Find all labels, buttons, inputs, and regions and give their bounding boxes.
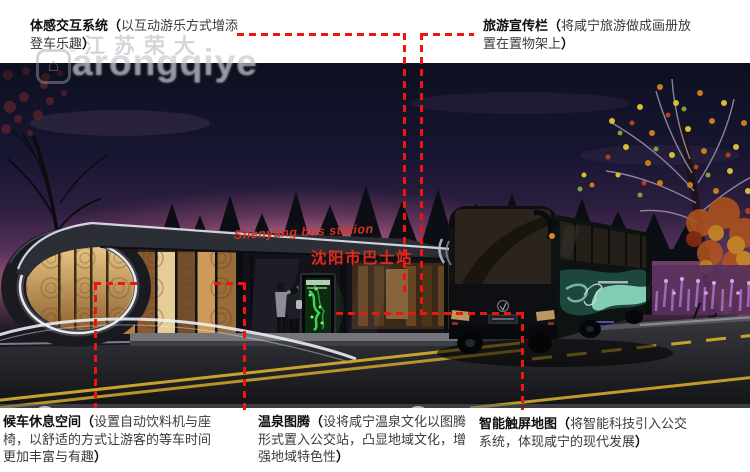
leader-line-lounge-v <box>94 283 97 408</box>
leader-line-sensory-v <box>403 33 406 292</box>
leader-line-totem-h <box>214 282 246 285</box>
presentation-board: 江苏荣大 ⌂ ® arongqiye 体感交互系统（以互动游乐方式增添登车乐趣）… <box>0 0 750 472</box>
leader-line-map-v <box>521 312 524 410</box>
banner-slogan: 江苏荣大 · 以品质成就价值 <box>446 406 706 409</box>
leader-line-tourism-v <box>420 33 423 313</box>
house-logo-icon: ⌂ <box>33 406 57 409</box>
callout-sensory-interaction: 体感交互系统（以互动游乐方式增添登车乐趣） <box>30 17 248 52</box>
callout-waiting-lounge: 候车休息空间（设置自动饮料机与座椅，以舒适的方式让游客的等车时间更加丰富与有趣） <box>3 413 221 466</box>
leader-line-totem-v <box>243 283 246 412</box>
banner-brand-right: ⌂® 江苏荣大 · 以品质成就价值 <box>406 404 706 408</box>
callout-title: 候车休息空间 <box>3 414 81 429</box>
watermark-banner: ⌂® 江苏荣大 · 以品质成就价值 ⌂® 江苏荣大 · 以品质成就价值 <box>0 404 750 408</box>
callout-tourism-board: 旅游宣传栏（将咸宁旅游做成画册放置在置物架上） <box>483 17 701 52</box>
banner-brand-left: ⌂® 江苏荣大 · 以品质成就价值 <box>33 404 333 408</box>
registered-mark-icon: ® <box>59 407 65 408</box>
station-sign-cn: 沈阳市巴士站 <box>311 248 413 267</box>
leader-line-tourism-h <box>421 33 474 36</box>
leader-line-lounge-h <box>94 282 138 285</box>
banner-slogan: 江苏荣大 · 以品质成就价值 <box>73 406 333 409</box>
house-logo-icon: ⌂ <box>406 406 430 409</box>
callout-title: 旅游宣传栏 <box>483 18 548 33</box>
callout-smart-map: 智能触屏地图（将智能科技引入公交系统，体现咸宁的现代发展） <box>479 415 697 450</box>
leader-line-sensory-h <box>237 33 406 36</box>
callout-hotspring-totem: 温泉图腾（设将咸宁温泉文化以图腾形式置入公交站，凸显地域文化，增强地域特色性） <box>258 413 476 466</box>
station-rendering-photo: Shenyang bus station 沈阳市巴士站 <box>0 63 750 408</box>
callout-title: 智能触屏地图 <box>479 416 557 431</box>
leader-line-map-h <box>336 312 524 315</box>
registered-mark-icon: ® <box>432 407 438 408</box>
callout-title: 温泉图腾 <box>258 414 310 429</box>
bus-emblem <box>498 301 509 312</box>
callout-title: 体感交互系统 <box>30 18 108 33</box>
